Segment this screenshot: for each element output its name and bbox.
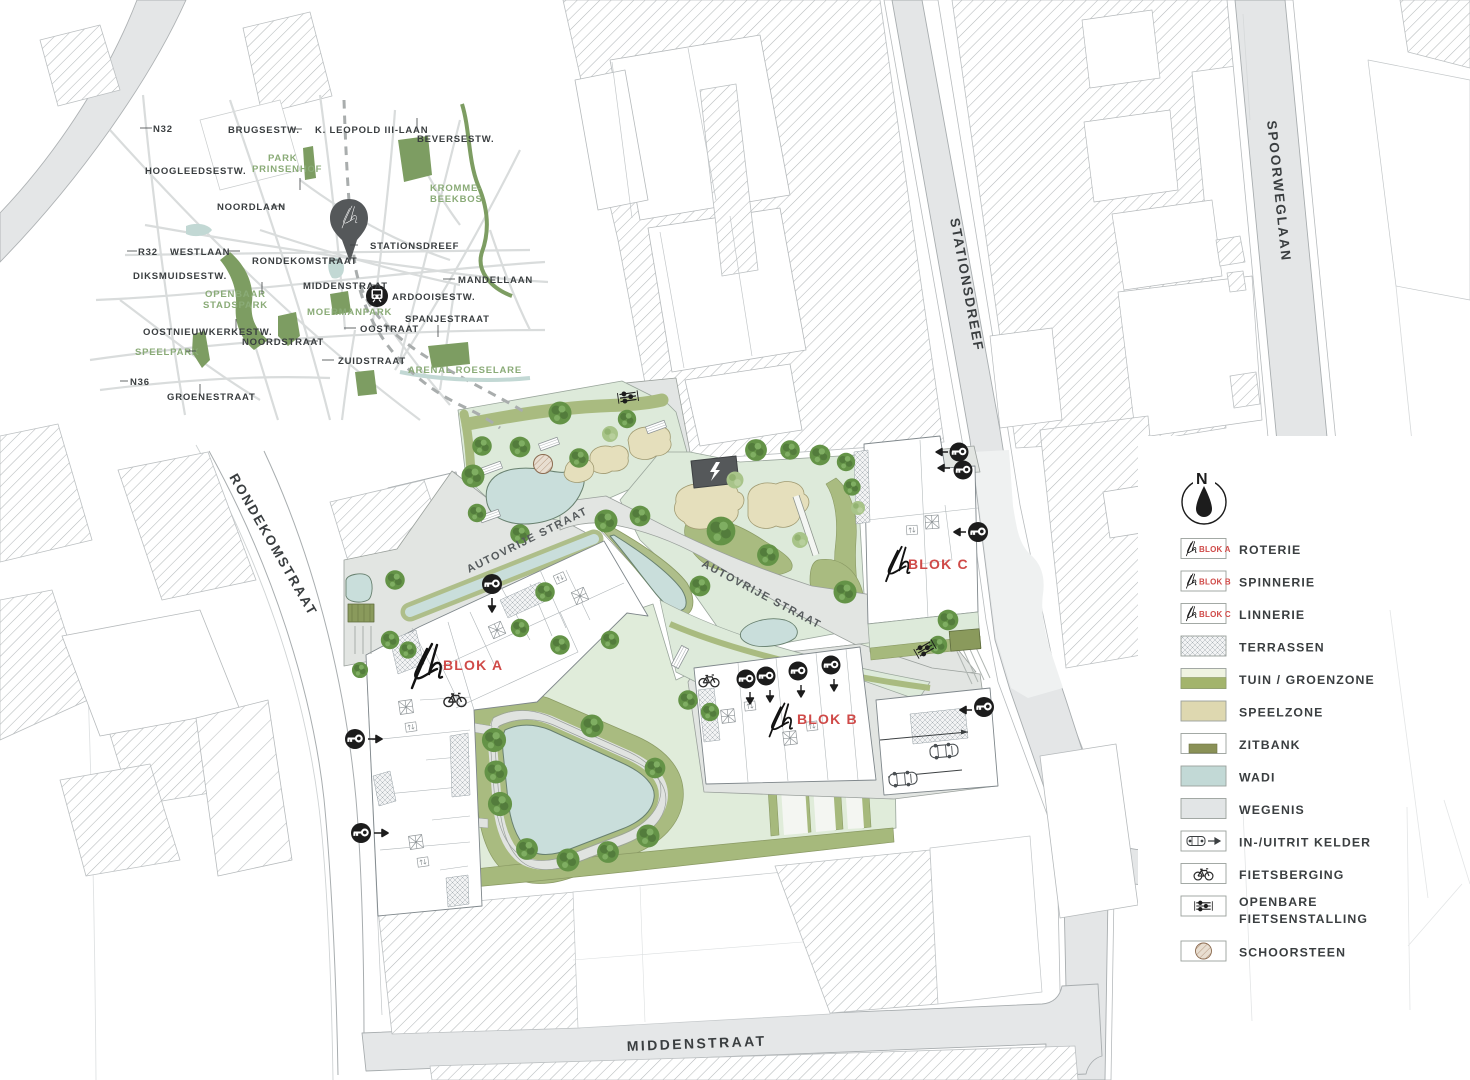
- svg-text:RONDEKOMSTRAAT: RONDEKOMSTRAAT: [252, 256, 358, 267]
- svg-text:STADSPARK: STADSPARK: [203, 300, 268, 311]
- svg-text:BLOK A: BLOK A: [1199, 545, 1231, 554]
- svg-text:BLOK B: BLOK B: [1199, 578, 1231, 587]
- svg-text:SCHOORSTEEN: SCHOORSTEEN: [1239, 946, 1346, 960]
- svg-text:BLOK C: BLOK C: [908, 556, 969, 572]
- svg-text:BLOK C: BLOK C: [1199, 610, 1231, 619]
- svg-text:NOORDSTRAAT: NOORDSTRAAT: [242, 337, 324, 348]
- svg-text:K. LEOPOLD III-LAAN: K. LEOPOLD III-LAAN: [315, 125, 428, 136]
- svg-text:BEVERSESTW.: BEVERSESTW.: [417, 134, 494, 145]
- svg-text:ARDOOISESTW.: ARDOOISESTW.: [392, 292, 476, 303]
- svg-text:WEGENIS: WEGENIS: [1239, 803, 1305, 817]
- svg-text:BLOK A: BLOK A: [443, 657, 503, 673]
- svg-text:MIDDENSTRAAT: MIDDENSTRAAT: [303, 281, 388, 292]
- svg-text:IN-/UITRIT KELDER: IN-/UITRIT KELDER: [1239, 836, 1371, 850]
- svg-text:LINNERIE: LINNERIE: [1239, 608, 1305, 622]
- svg-text:WADI: WADI: [1239, 771, 1276, 785]
- svg-text:KROMME-: KROMME-: [430, 183, 482, 194]
- svg-text:WESTLAAN: WESTLAAN: [170, 247, 230, 258]
- svg-text:SPEELPARK: SPEELPARK: [135, 347, 200, 358]
- svg-text:STATIONSDREEF: STATIONSDREEF: [370, 241, 459, 252]
- svg-text:OOSTRAAT: OOSTRAAT: [360, 324, 419, 335]
- svg-text:TUIN / GROENZONE: TUIN / GROENZONE: [1239, 673, 1375, 687]
- svg-text:ZITBANK: ZITBANK: [1239, 738, 1301, 752]
- svg-text:DIKSMUIDSESTW.: DIKSMUIDSESTW.: [133, 271, 227, 282]
- svg-text:R32: R32: [138, 247, 158, 258]
- svg-text:FIETSENSTALLING: FIETSENSTALLING: [1239, 912, 1368, 926]
- svg-text:FIETSBERGING: FIETSBERGING: [1239, 868, 1344, 882]
- svg-text:GROENESTRAAT: GROENESTRAAT: [167, 392, 256, 403]
- svg-text:ARENAL ROESELARE: ARENAL ROESELARE: [408, 365, 522, 376]
- svg-text:BRUGSESTW.: BRUGSESTW.: [228, 125, 300, 136]
- svg-text:HOOGLEEDSESTW.: HOOGLEEDSESTW.: [145, 166, 246, 177]
- svg-text:N32: N32: [153, 124, 173, 135]
- svg-text:NOORDLAAN: NOORDLAAN: [217, 202, 286, 213]
- svg-text:MANDELLAAN: MANDELLAAN: [458, 275, 533, 286]
- svg-text:SPANJESTRAAT: SPANJESTRAAT: [405, 314, 490, 325]
- svg-text:N: N: [1196, 471, 1208, 488]
- svg-text:SPEELZONE: SPEELZONE: [1239, 706, 1323, 720]
- svg-text:OPENBARE: OPENBARE: [1239, 895, 1318, 909]
- svg-text:ROTERIE: ROTERIE: [1239, 543, 1301, 557]
- svg-text:N36: N36: [130, 377, 150, 388]
- svg-text:BLOK B: BLOK B: [797, 711, 858, 727]
- svg-text:BEEKBOS: BEEKBOS: [430, 194, 483, 205]
- svg-text:SPINNERIE: SPINNERIE: [1239, 576, 1315, 590]
- svg-text:TERRASSEN: TERRASSEN: [1239, 641, 1325, 655]
- svg-text:PARK: PARK: [268, 153, 297, 164]
- svg-text:OPENBAAR: OPENBAAR: [205, 289, 266, 300]
- svg-text:PRINSENHOF: PRINSENHOF: [252, 164, 322, 175]
- svg-text:ZUIDSTRAAT: ZUIDSTRAAT: [338, 356, 406, 367]
- svg-text:MOERMANPARK: MOERMANPARK: [307, 307, 392, 318]
